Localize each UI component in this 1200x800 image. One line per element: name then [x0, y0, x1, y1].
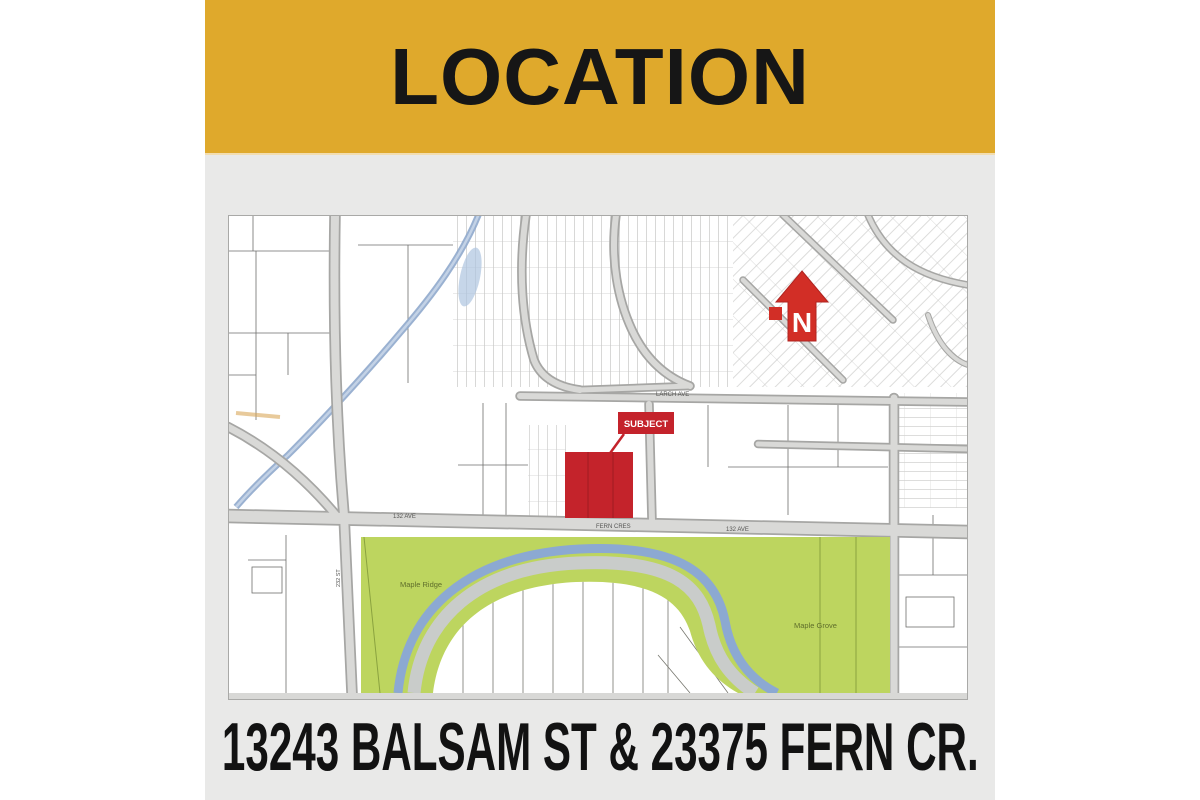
road-label-132ave-left: 132 AVE [393, 514, 416, 520]
lots-near-subject [528, 425, 566, 517]
subject-parcel [565, 452, 633, 518]
map-image: 132 AVE FERN CRES 132 AVE LARCH AVE 232 … [228, 215, 968, 700]
content-panel: LOCATION [205, 0, 995, 800]
location-banner: LOCATION [205, 0, 995, 155]
park-label-maple-grove: Maple Grove [794, 621, 837, 630]
north-arrow-label: N [792, 307, 812, 338]
page-title: LOCATION [390, 37, 810, 117]
location-flyer-page: LOCATION [0, 0, 1200, 800]
road-label-fern-cres: FERN CRES [596, 524, 631, 530]
address-text: 13243 BALSAM ST & 23375 FERN CR. [222, 713, 979, 781]
road-label-232st: 232 ST [336, 569, 342, 587]
road-label-132ave-right: 132 AVE [726, 527, 749, 533]
subdivision-lots-top-middle [453, 215, 733, 387]
map-bottom-strip [228, 693, 968, 700]
subject-label: SUBJECT [624, 419, 669, 430]
address-line: 13243 BALSAM ST & 23375 FERN CR. [205, 702, 995, 792]
park-label-maple-ridge: Maple Ridge [400, 580, 442, 589]
road-label-larch-ave: LARCH AVE [656, 392, 689, 398]
location-map: 132 AVE FERN CRES 132 AVE LARCH AVE 232 … [228, 215, 968, 700]
